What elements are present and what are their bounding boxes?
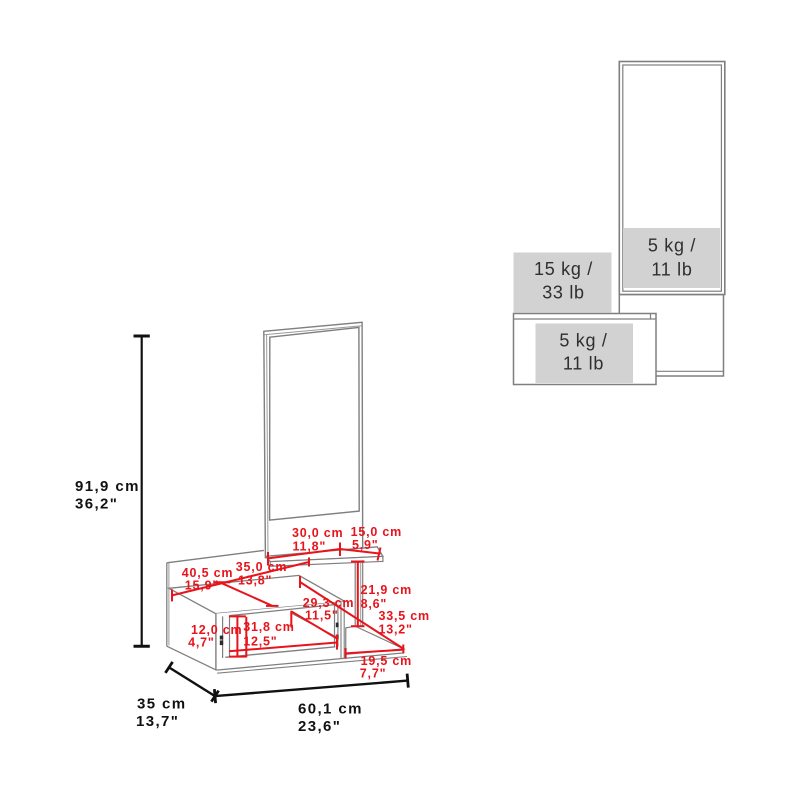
svg-text:5 kg /: 5 kg / [559,331,607,351]
svg-text:15 kg /: 15 kg / [534,259,593,279]
svg-text:60,1 cm: 60,1 cm [298,701,363,718]
svg-text:35 cm: 35 cm [137,696,187,713]
svg-text:36,2": 36,2" [75,496,118,513]
svg-text:35,0 cm: 35,0 cm [236,560,287,574]
svg-text:12,5": 12,5" [243,635,277,649]
svg-text:33,5 cm: 33,5 cm [379,609,430,623]
svg-text:13,8": 13,8" [238,573,272,587]
svg-text:11,5": 11,5" [305,608,339,622]
svg-text:15,0 cm: 15,0 cm [351,525,402,539]
svg-text:5,9": 5,9" [352,538,379,552]
svg-text:21,9 cm: 21,9 cm [361,583,412,597]
svg-text:13,7": 13,7" [136,713,179,730]
svg-text:11,8": 11,8" [293,540,327,554]
svg-text:23,6": 23,6" [298,718,341,735]
svg-text:5 kg /: 5 kg / [648,236,696,256]
svg-text:11 lb: 11 lb [563,354,604,374]
svg-text:15,9": 15,9" [185,579,219,593]
svg-text:33 lb: 33 lb [542,283,585,303]
svg-text:11 lb: 11 lb [651,260,692,280]
svg-text:4,7": 4,7" [188,636,215,650]
svg-text:13,2": 13,2" [379,623,413,637]
svg-text:91,9 cm: 91,9 cm [75,478,140,495]
svg-text:30,0 cm: 30,0 cm [292,526,343,540]
svg-text:7,7": 7,7" [360,666,387,680]
svg-text:31,8 cm: 31,8 cm [243,620,294,634]
